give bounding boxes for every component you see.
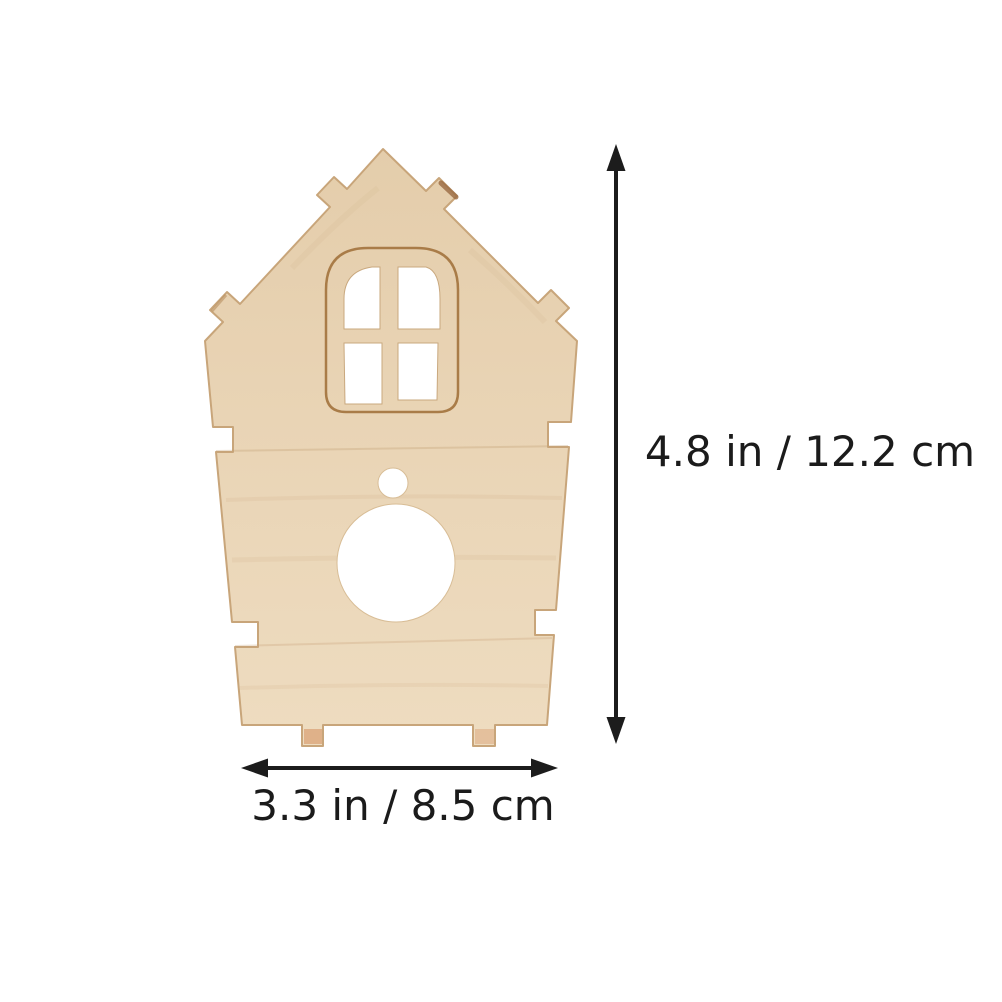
arrowhead-right-icon — [531, 759, 558, 778]
birdhouse-panel — [205, 149, 577, 746]
entrance-hole — [337, 504, 455, 622]
arrowhead-up-icon — [607, 144, 626, 171]
width-arrow — [241, 759, 558, 778]
height-dimension-label: 4.8 in / 12.2 cm — [640, 424, 980, 480]
width-dimension-label: 3.3 in / 8.5 cm — [233, 778, 573, 834]
hanging-hole — [378, 468, 408, 498]
height-arrow — [607, 144, 626, 744]
window-pane-top-right — [398, 267, 440, 329]
window-pane-bottom-right — [398, 343, 438, 400]
product-image: 4.8 in / 12.2 cm 3.3 in / 8.5 cm — [0, 0, 1002, 1002]
arrowhead-down-icon — [607, 717, 626, 744]
arrowhead-left-icon — [241, 759, 268, 778]
window-pane-bottom-left — [344, 343, 382, 404]
birdhouse-diagram — [0, 0, 1002, 1002]
